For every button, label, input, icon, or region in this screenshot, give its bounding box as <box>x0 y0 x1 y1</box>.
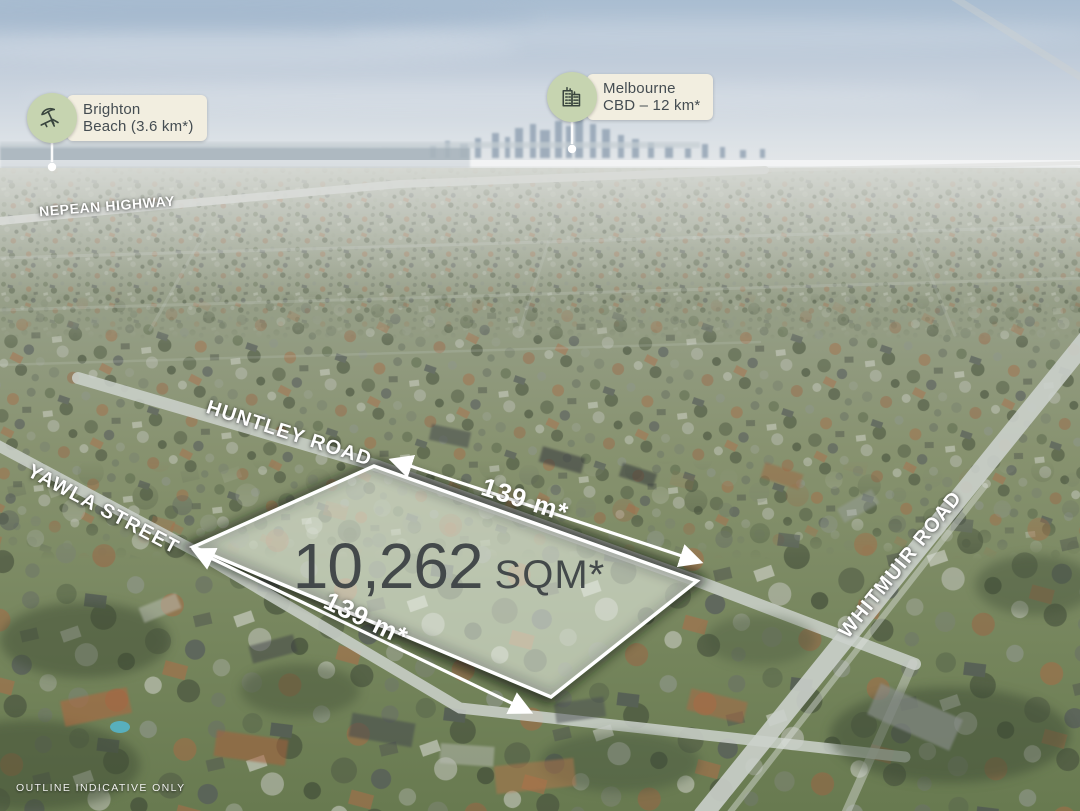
brighton-subtitle: Beach (3.6 km*) <box>83 118 194 135</box>
disclaimer-text: OUTLINE INDICATIVE ONLY <box>16 782 186 794</box>
brighton-pointer-dot <box>48 163 56 171</box>
swimming-pool <box>110 721 130 733</box>
beach-umbrella-icon <box>27 93 77 143</box>
parcel-area-value: 10,262 <box>293 529 483 603</box>
parcel-area-unit: SQM* <box>495 553 606 598</box>
brighton-pill: Brighton Beach (3.6 km*) <box>67 95 207 141</box>
melbourne-title: Melbourne <box>603 80 700 97</box>
callout-melbourne-cbd: Melbourne CBD – 12 km* <box>547 72 713 122</box>
melbourne-pill: Melbourne CBD – 12 km* <box>587 74 713 120</box>
melbourne-subtitle: CBD – 12 km* <box>603 97 700 114</box>
callout-brighton-beach: Brighton Beach (3.6 km*) <box>27 93 207 143</box>
parcel-area-label: 10,262 SQM* <box>293 529 605 603</box>
melbourne-pointer-dot <box>568 145 576 153</box>
city-buildings-icon <box>547 72 597 122</box>
brighton-title: Brighton <box>83 101 194 118</box>
aerial-property-photo: Brighton Beach (3.6 km*) Melbourne CBD –… <box>0 0 1080 811</box>
